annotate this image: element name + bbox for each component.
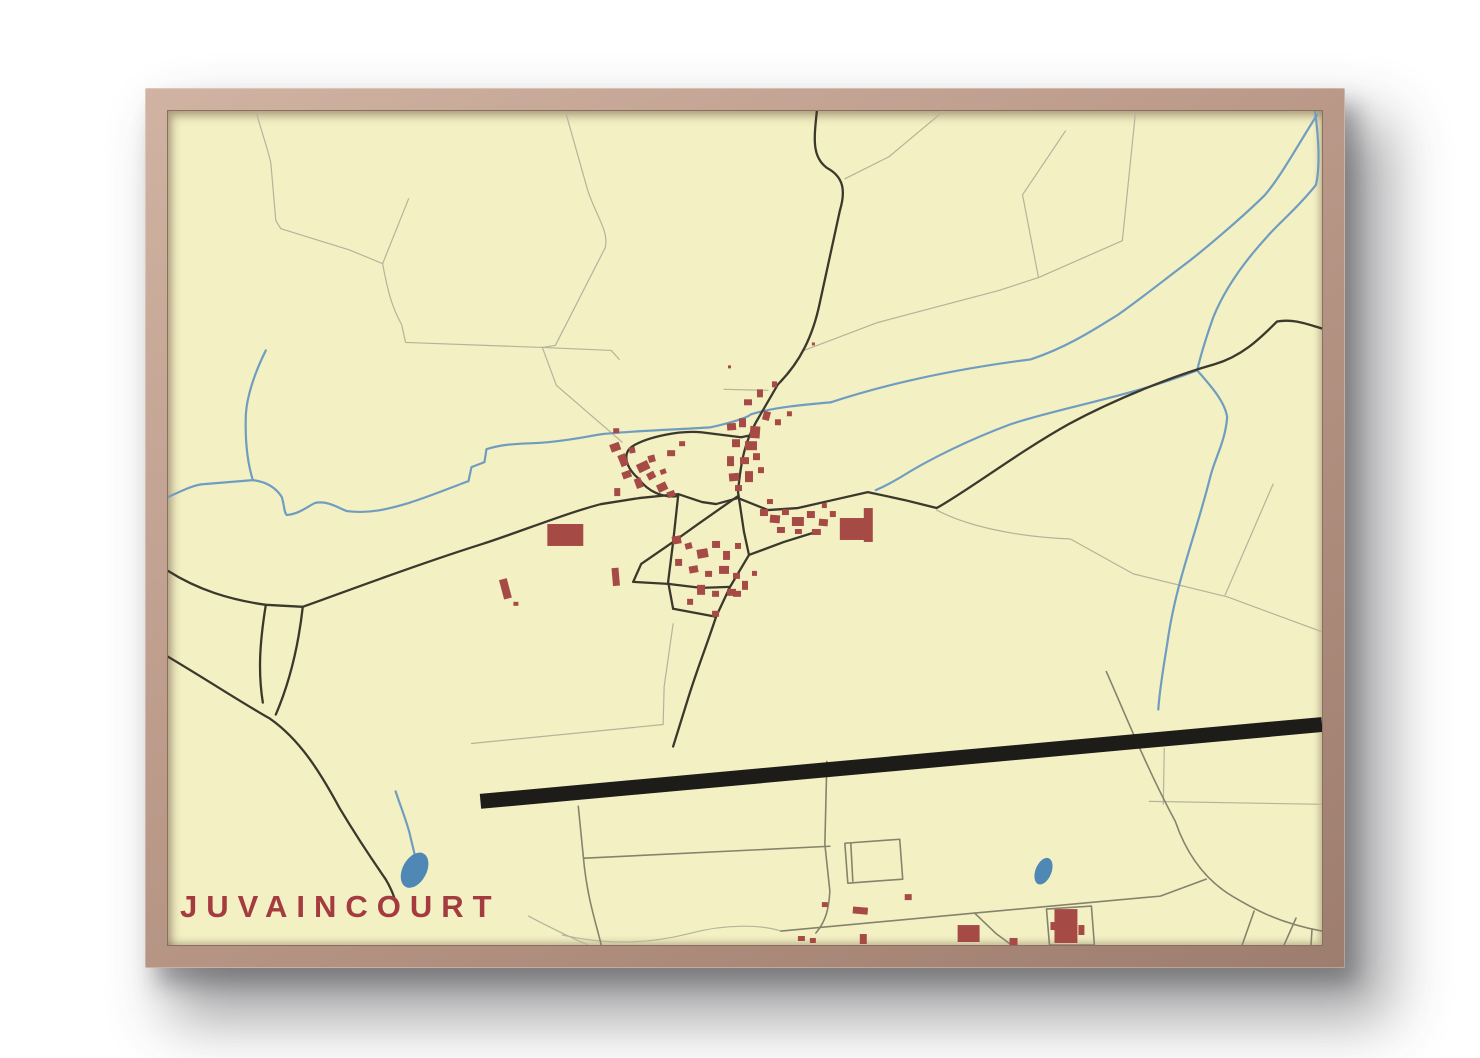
building: [727, 423, 737, 431]
building: [728, 365, 731, 368]
building: [609, 442, 621, 453]
building: [689, 565, 699, 573]
building: [767, 499, 773, 504]
building: [611, 568, 620, 586]
poster-title: JUVAINCOURT: [180, 889, 501, 925]
poster-paper: JUVAINCOURT: [167, 110, 1323, 946]
map-canvas: [168, 111, 1322, 945]
building: [740, 457, 749, 464]
building: [1010, 938, 1018, 945]
building: [733, 591, 741, 597]
poster-frame: JUVAINCOURT: [145, 88, 1345, 968]
building: [819, 519, 829, 527]
building: [958, 925, 980, 942]
building: [672, 535, 682, 544]
building: [753, 453, 760, 460]
building: [687, 599, 693, 605]
building: [798, 936, 805, 941]
pond: [1031, 855, 1056, 887]
building: [758, 467, 764, 473]
building: [787, 411, 792, 416]
pond: [395, 848, 434, 893]
building: [679, 441, 685, 446]
runway: [480, 725, 1322, 802]
building: [770, 515, 781, 524]
building: [547, 524, 583, 546]
building: [727, 456, 734, 466]
building: [696, 548, 708, 559]
building: [712, 591, 719, 597]
building: [744, 399, 752, 405]
building: [659, 468, 666, 475]
building: [733, 573, 740, 579]
building: [775, 419, 781, 425]
building: [795, 529, 802, 534]
building: [636, 460, 651, 473]
building: [499, 578, 512, 599]
building: [905, 894, 912, 900]
building: [712, 541, 720, 548]
building: [1078, 925, 1084, 935]
building: [812, 342, 815, 345]
building: [782, 509, 789, 515]
building: [822, 503, 827, 508]
building: [719, 566, 729, 574]
building: [712, 611, 719, 617]
building: [830, 511, 836, 517]
building: [667, 450, 675, 456]
building: [646, 471, 656, 481]
building: [750, 426, 761, 439]
minor-roads-layer: [578, 672, 1322, 945]
building: [684, 542, 692, 550]
building: [853, 906, 869, 914]
building: [513, 602, 518, 606]
building: [735, 485, 742, 491]
building: [752, 571, 757, 576]
building: [705, 571, 712, 577]
building: [735, 543, 741, 549]
building: [745, 471, 753, 482]
building: [810, 938, 816, 943]
field-lines-layer: [256, 111, 1322, 945]
building: [742, 581, 748, 590]
building: [614, 488, 620, 496]
building: [675, 559, 682, 566]
building: [840, 518, 866, 540]
building: [697, 585, 705, 595]
building: [729, 473, 740, 482]
building: [864, 508, 873, 542]
building: [656, 481, 668, 492]
building: [634, 477, 644, 489]
ponds-layer: [395, 848, 1056, 893]
building: [1054, 909, 1077, 943]
building: [757, 389, 763, 397]
building: [745, 441, 757, 450]
building: [647, 454, 656, 463]
building: [860, 934, 867, 944]
building: [732, 439, 740, 447]
building: [613, 428, 619, 433]
building: [760, 509, 768, 516]
building: [792, 517, 804, 526]
building: [822, 902, 828, 907]
building: [739, 418, 746, 427]
page-root: { "poster": { "title": "JUVAINCOURT" }, …: [0, 0, 1480, 1058]
building: [812, 529, 821, 535]
building: [772, 381, 777, 387]
building: [807, 511, 815, 518]
building: [723, 551, 730, 560]
building: [1050, 922, 1055, 930]
buildings-layer: [499, 342, 1084, 945]
building: [629, 447, 636, 454]
building: [777, 527, 785, 533]
